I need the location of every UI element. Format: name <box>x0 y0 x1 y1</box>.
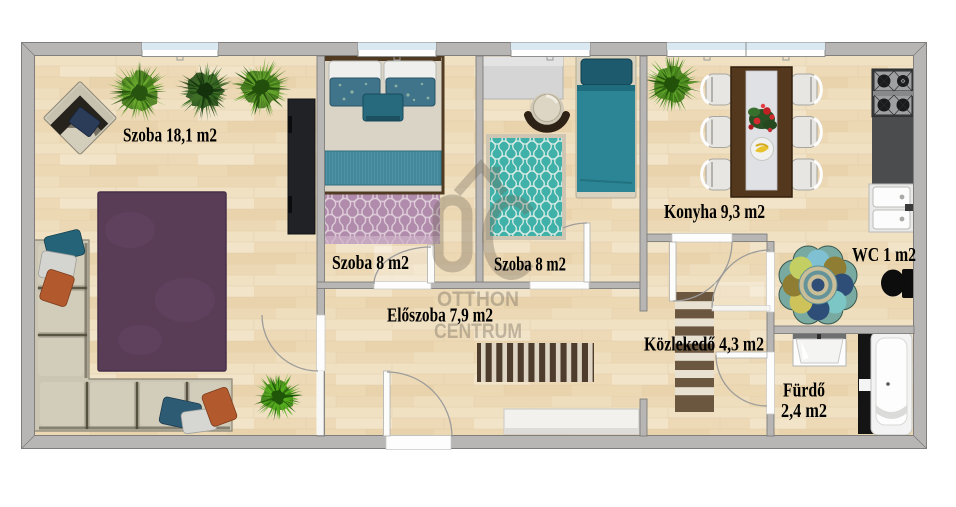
svg-text:Szoba 8 m2: Szoba 8 m2 <box>494 254 566 276</box>
svg-text:Szoba 8 m2: Szoba 8 m2 <box>332 252 409 274</box>
svg-text:Fürdő: Fürdő <box>783 380 825 402</box>
svg-text:Konyha 9,3 m2: Konyha 9,3 m2 <box>664 201 765 223</box>
svg-text:WC 1 m2: WC 1 m2 <box>852 244 916 266</box>
svg-text:Közlekedő 4,3 m2: Közlekedő 4,3 m2 <box>644 334 764 356</box>
svg-text:2,4 m2: 2,4 m2 <box>781 400 827 422</box>
svg-text:Előszoba 7,9 m2: Előszoba 7,9 m2 <box>387 305 493 327</box>
svg-text:Szoba 18,1 m2: Szoba 18,1 m2 <box>123 125 217 147</box>
